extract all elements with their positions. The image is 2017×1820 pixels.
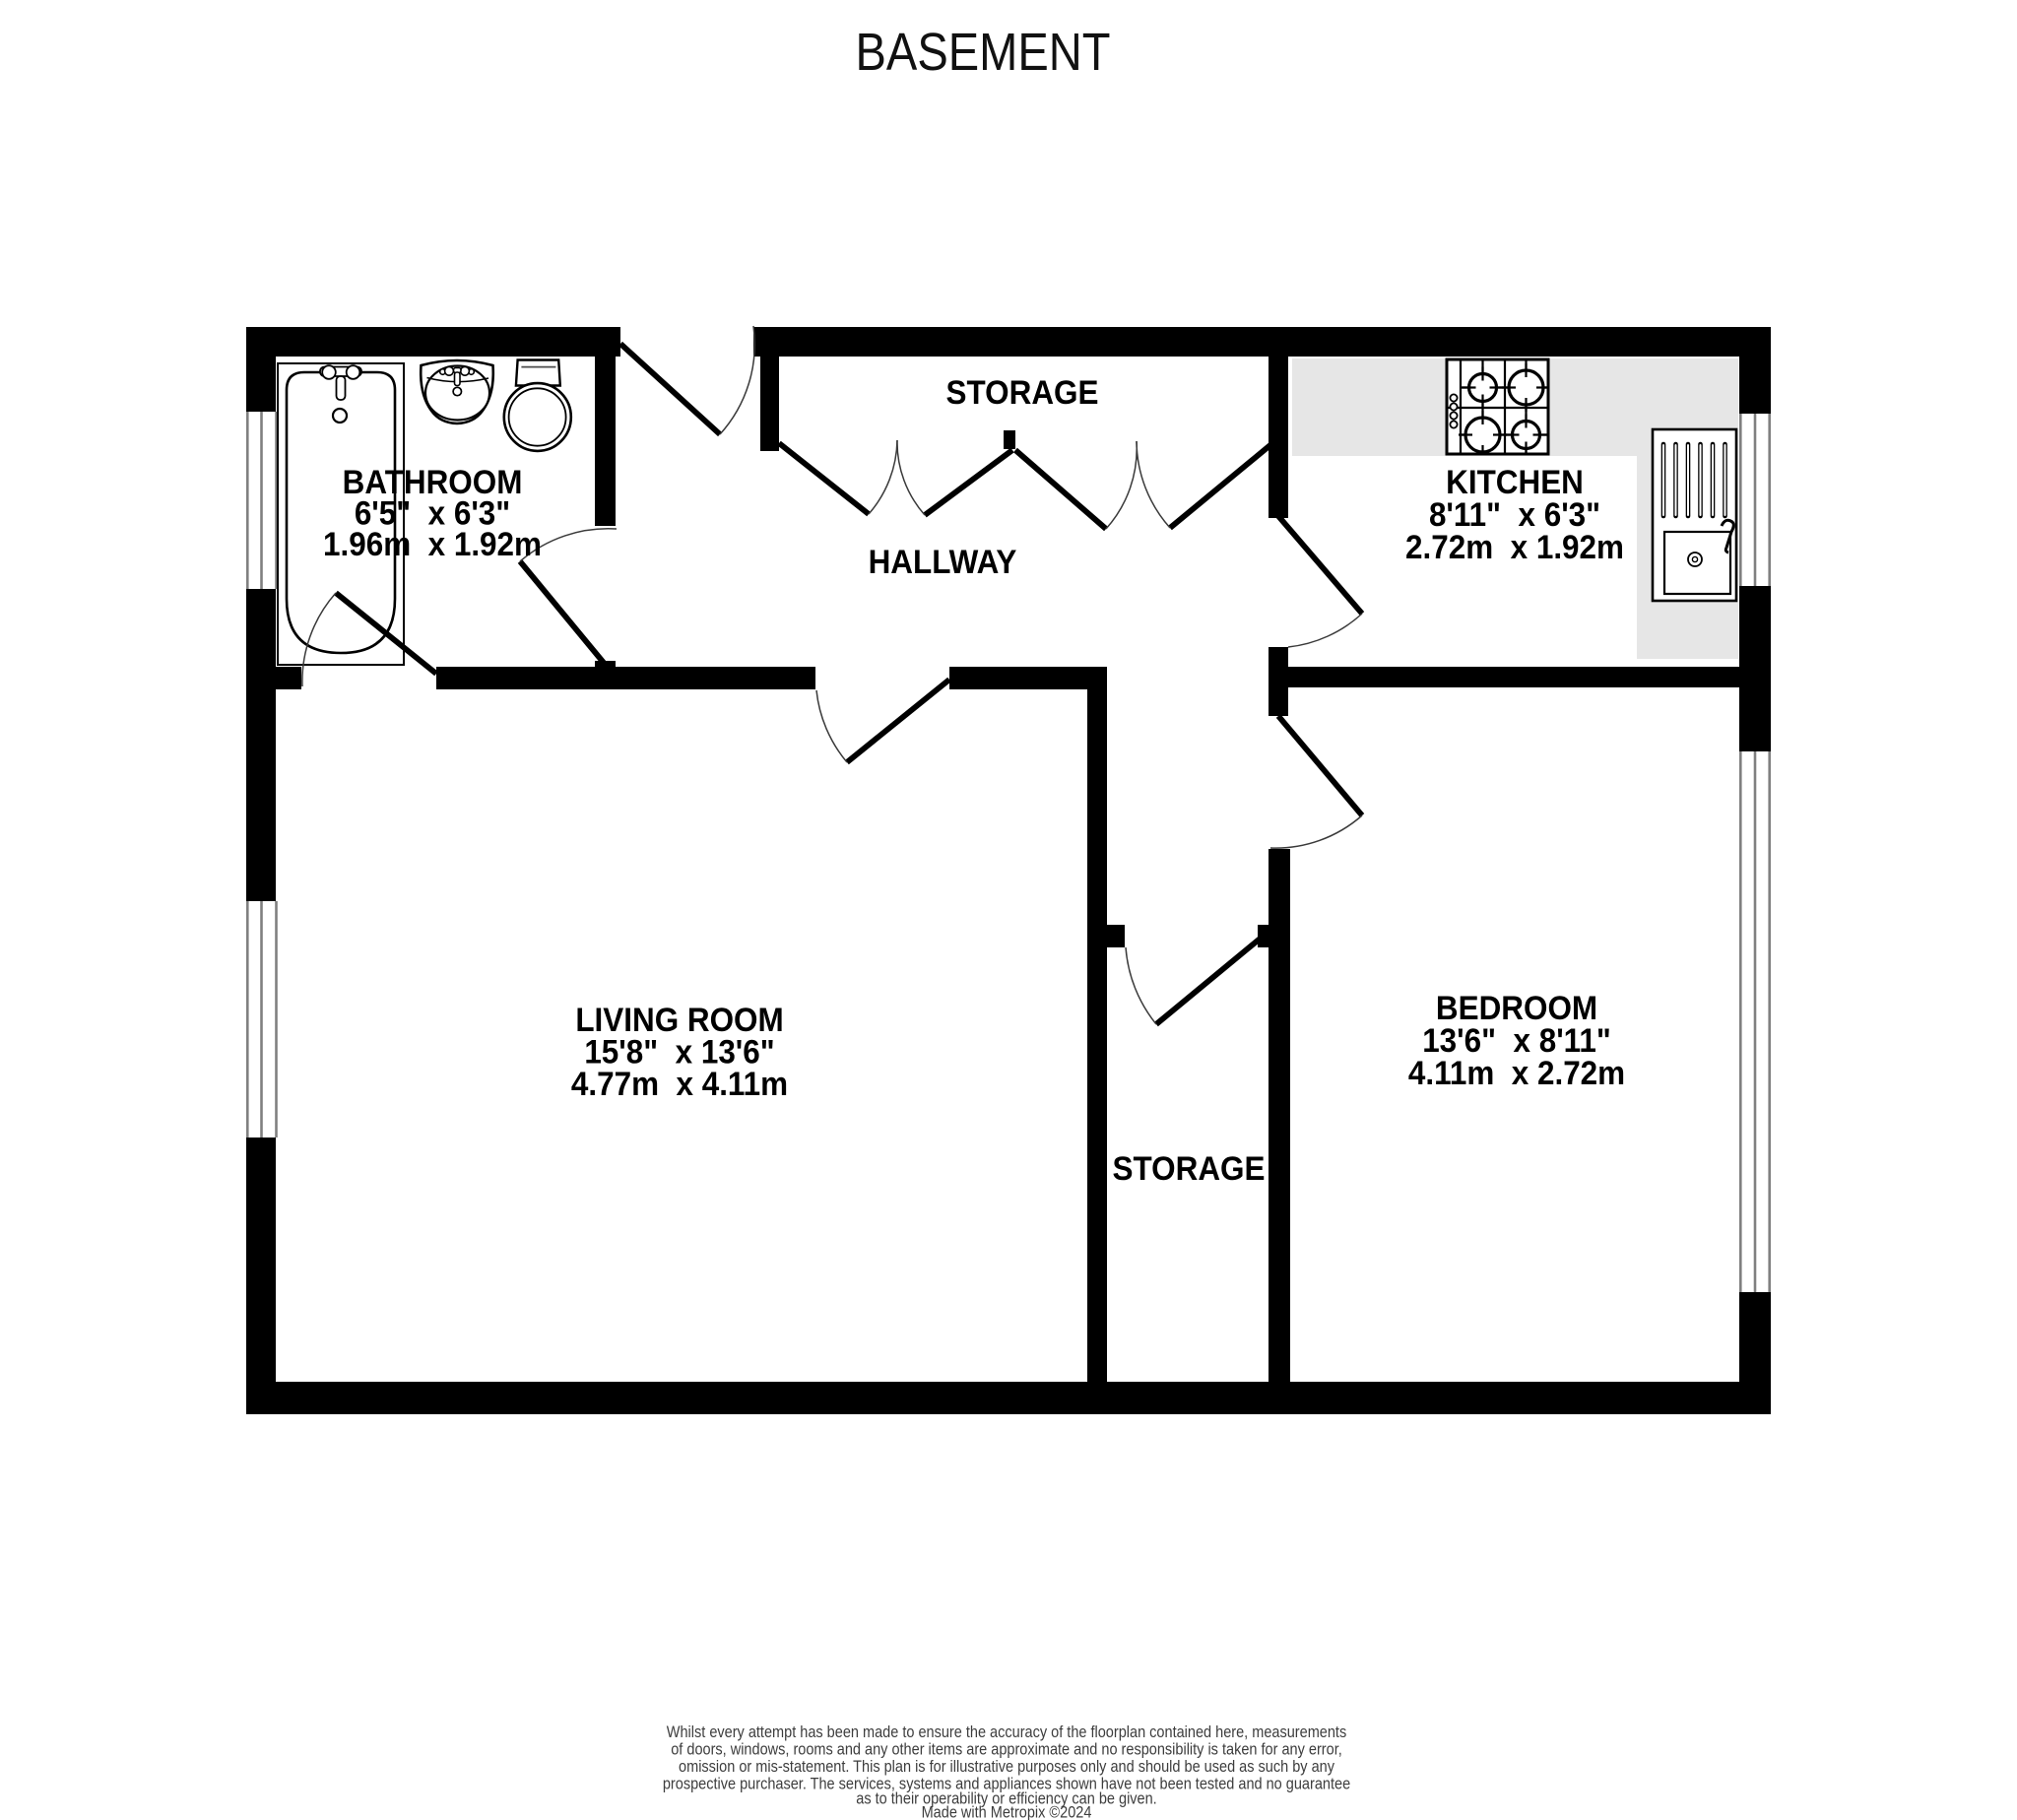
svg-text:omission or mis-statement. Thi: omission or mis-statement. This plan is … (679, 1758, 1334, 1776)
svg-text:BASEMENT: BASEMENT (856, 22, 1111, 82)
svg-text:HALLWAY: HALLWAY (869, 543, 1017, 580)
svg-text:1.96m x 1.92m: 1.96m x 1.92m (323, 525, 542, 562)
svg-text:STORAGE: STORAGE (946, 373, 1099, 411)
svg-text:of doors, windows, rooms and a: of doors, windows, rooms and any other i… (671, 1741, 1342, 1759)
svg-text:STORAGE: STORAGE (1113, 1149, 1266, 1187)
svg-text:4.11m x 2.72m: 4.11m x 2.72m (1408, 1054, 1625, 1091)
svg-text:Made with Metropix ©2024: Made with Metropix ©2024 (922, 1804, 1092, 1820)
svg-text:Whilst every attempt has been: Whilst every attempt has been made to en… (667, 1723, 1347, 1741)
svg-text:4.77m x 4.11m: 4.77m x 4.11m (571, 1065, 788, 1102)
svg-text:2.72m x 1.92m: 2.72m x 1.92m (1405, 528, 1624, 565)
